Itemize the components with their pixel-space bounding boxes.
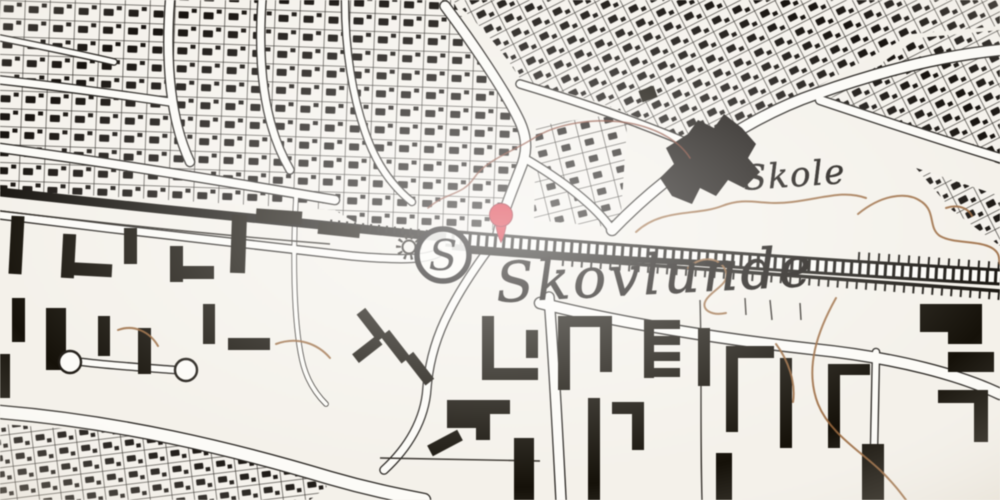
map-canvas[interactable]: Skovlunde Skole S: [0, 0, 1000, 500]
vignette-overlay: [0, 0, 1000, 500]
map-viewport[interactable]: Skovlunde Skole S: [0, 0, 1000, 500]
